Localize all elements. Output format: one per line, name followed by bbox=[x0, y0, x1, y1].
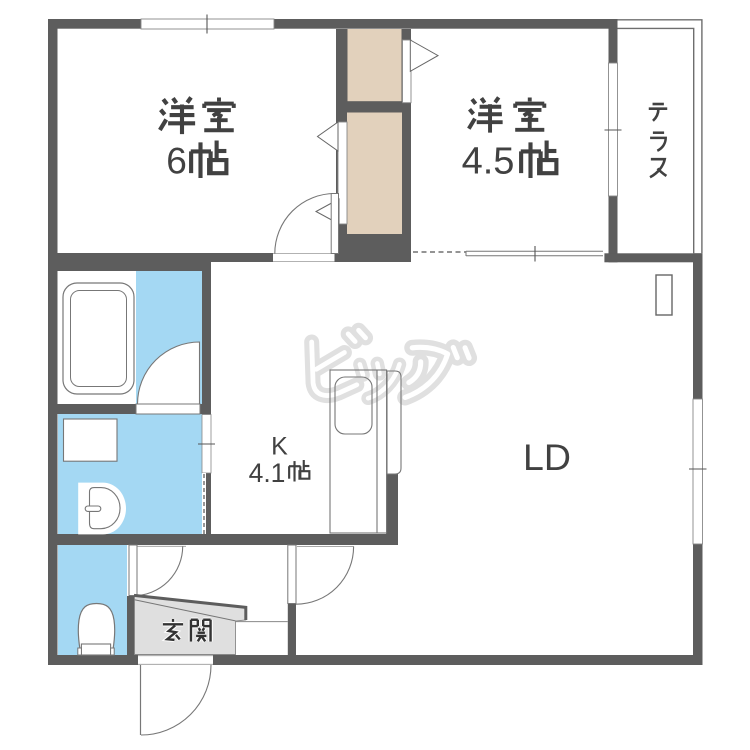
svg-text:LD: LD bbox=[523, 436, 571, 478]
svg-text:4.5: 4.5 bbox=[462, 141, 515, 183]
svg-text:4.1: 4.1 bbox=[249, 458, 286, 488]
svg-text:6: 6 bbox=[166, 141, 187, 182]
svg-text:K: K bbox=[271, 433, 288, 461]
